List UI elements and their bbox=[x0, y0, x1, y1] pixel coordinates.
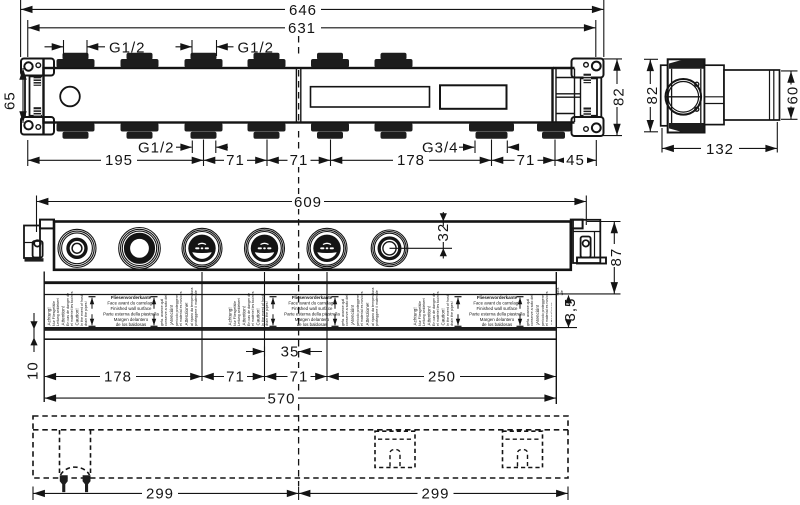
svg-text:609: 609 bbox=[294, 194, 322, 211]
svg-text:178: 178 bbox=[104, 369, 132, 386]
svg-text:71: 71 bbox=[290, 369, 309, 386]
svg-text:65: 65 bbox=[2, 91, 19, 110]
svg-text:71: 71 bbox=[226, 369, 245, 386]
svg-text:82: 82 bbox=[644, 86, 661, 105]
svg-text:250: 250 bbox=[428, 369, 456, 386]
svg-text:G1/2: G1/2 bbox=[238, 39, 275, 56]
svg-text:82: 82 bbox=[611, 87, 628, 106]
svg-text:87: 87 bbox=[608, 248, 625, 267]
svg-text:631: 631 bbox=[288, 20, 316, 37]
svg-text:45: 45 bbox=[566, 152, 585, 169]
svg-text:35: 35 bbox=[281, 344, 300, 361]
svg-text:178: 178 bbox=[397, 152, 425, 169]
svg-text:71: 71 bbox=[517, 152, 536, 169]
svg-text:195: 195 bbox=[105, 152, 133, 169]
svg-text:60: 60 bbox=[785, 86, 800, 105]
svg-text:570: 570 bbox=[267, 391, 295, 408]
svg-text:G1/2: G1/2 bbox=[138, 139, 175, 156]
svg-text:10: 10 bbox=[25, 361, 42, 380]
svg-text:G1/2: G1/2 bbox=[109, 39, 146, 56]
svg-text:132: 132 bbox=[706, 141, 734, 158]
svg-text:32: 32 bbox=[435, 223, 452, 242]
svg-text:71: 71 bbox=[226, 152, 245, 169]
svg-text:299: 299 bbox=[146, 486, 174, 503]
svg-text:71: 71 bbox=[290, 152, 309, 169]
svg-text:646: 646 bbox=[289, 2, 317, 19]
svg-text:299: 299 bbox=[421, 486, 449, 503]
